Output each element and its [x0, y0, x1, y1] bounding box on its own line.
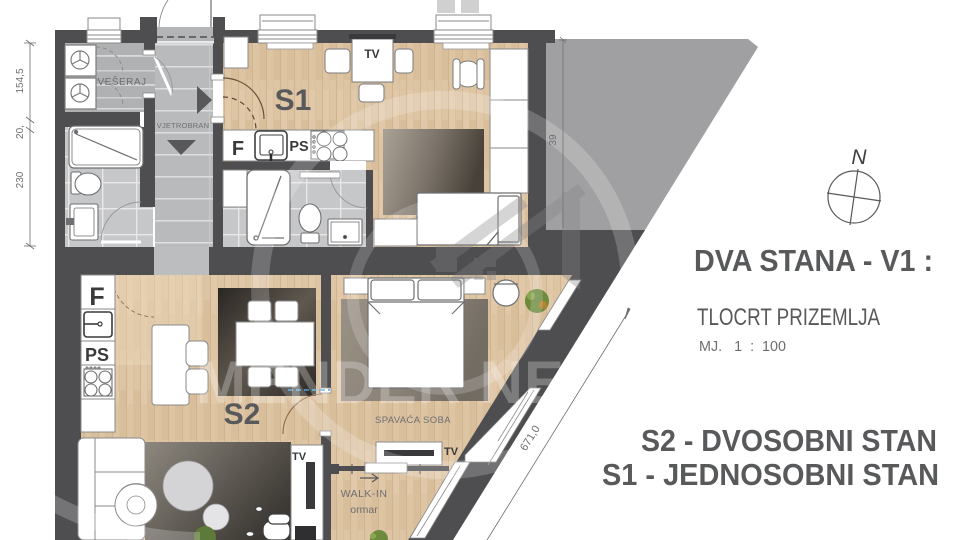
svg-text:TV: TV: [292, 451, 307, 463]
svg-text:154,5: 154,5: [15, 68, 26, 93]
svg-text:TV: TV: [364, 47, 379, 61]
svg-text:ormar: ormar: [350, 504, 378, 516]
svg-text:MJ. 1 : 100: MJ. 1 : 100: [699, 339, 786, 355]
svg-text:MENDER NEKRE: MENDER NEKRE: [196, 349, 695, 416]
svg-text:F: F: [232, 138, 244, 160]
svg-text:S1: S1: [275, 84, 312, 117]
svg-text:S1 - JEDNOSOBNI STAN: S1 - JEDNOSOBNI STAN: [602, 457, 939, 492]
svg-text:TV: TV: [444, 446, 459, 458]
svg-text:TLOCRT PRIZEMLJA: TLOCRT PRIZEMLJA: [697, 304, 880, 331]
svg-text:20,: 20,: [15, 125, 26, 139]
svg-text:N: N: [851, 146, 867, 169]
svg-text:F: F: [89, 283, 104, 311]
svg-text:VEŠERAJ: VEŠERAJ: [97, 75, 146, 88]
svg-text:39: 39: [548, 134, 559, 146]
svg-text:SPAVAĆA SOBA: SPAVAĆA SOBA: [375, 415, 451, 426]
svg-text:DVA STANA - V1 :: DVA STANA - V1 :: [694, 243, 933, 278]
svg-text:VJETROBRAN: VJETROBRAN: [157, 121, 209, 130]
svg-text:S2 - DVOSOBNI STAN: S2 - DVOSOBNI STAN: [641, 423, 937, 458]
svg-text:PS: PS: [85, 345, 109, 365]
svg-text:230: 230: [15, 171, 26, 188]
svg-text:WALK-IN: WALK-IN: [341, 488, 388, 500]
